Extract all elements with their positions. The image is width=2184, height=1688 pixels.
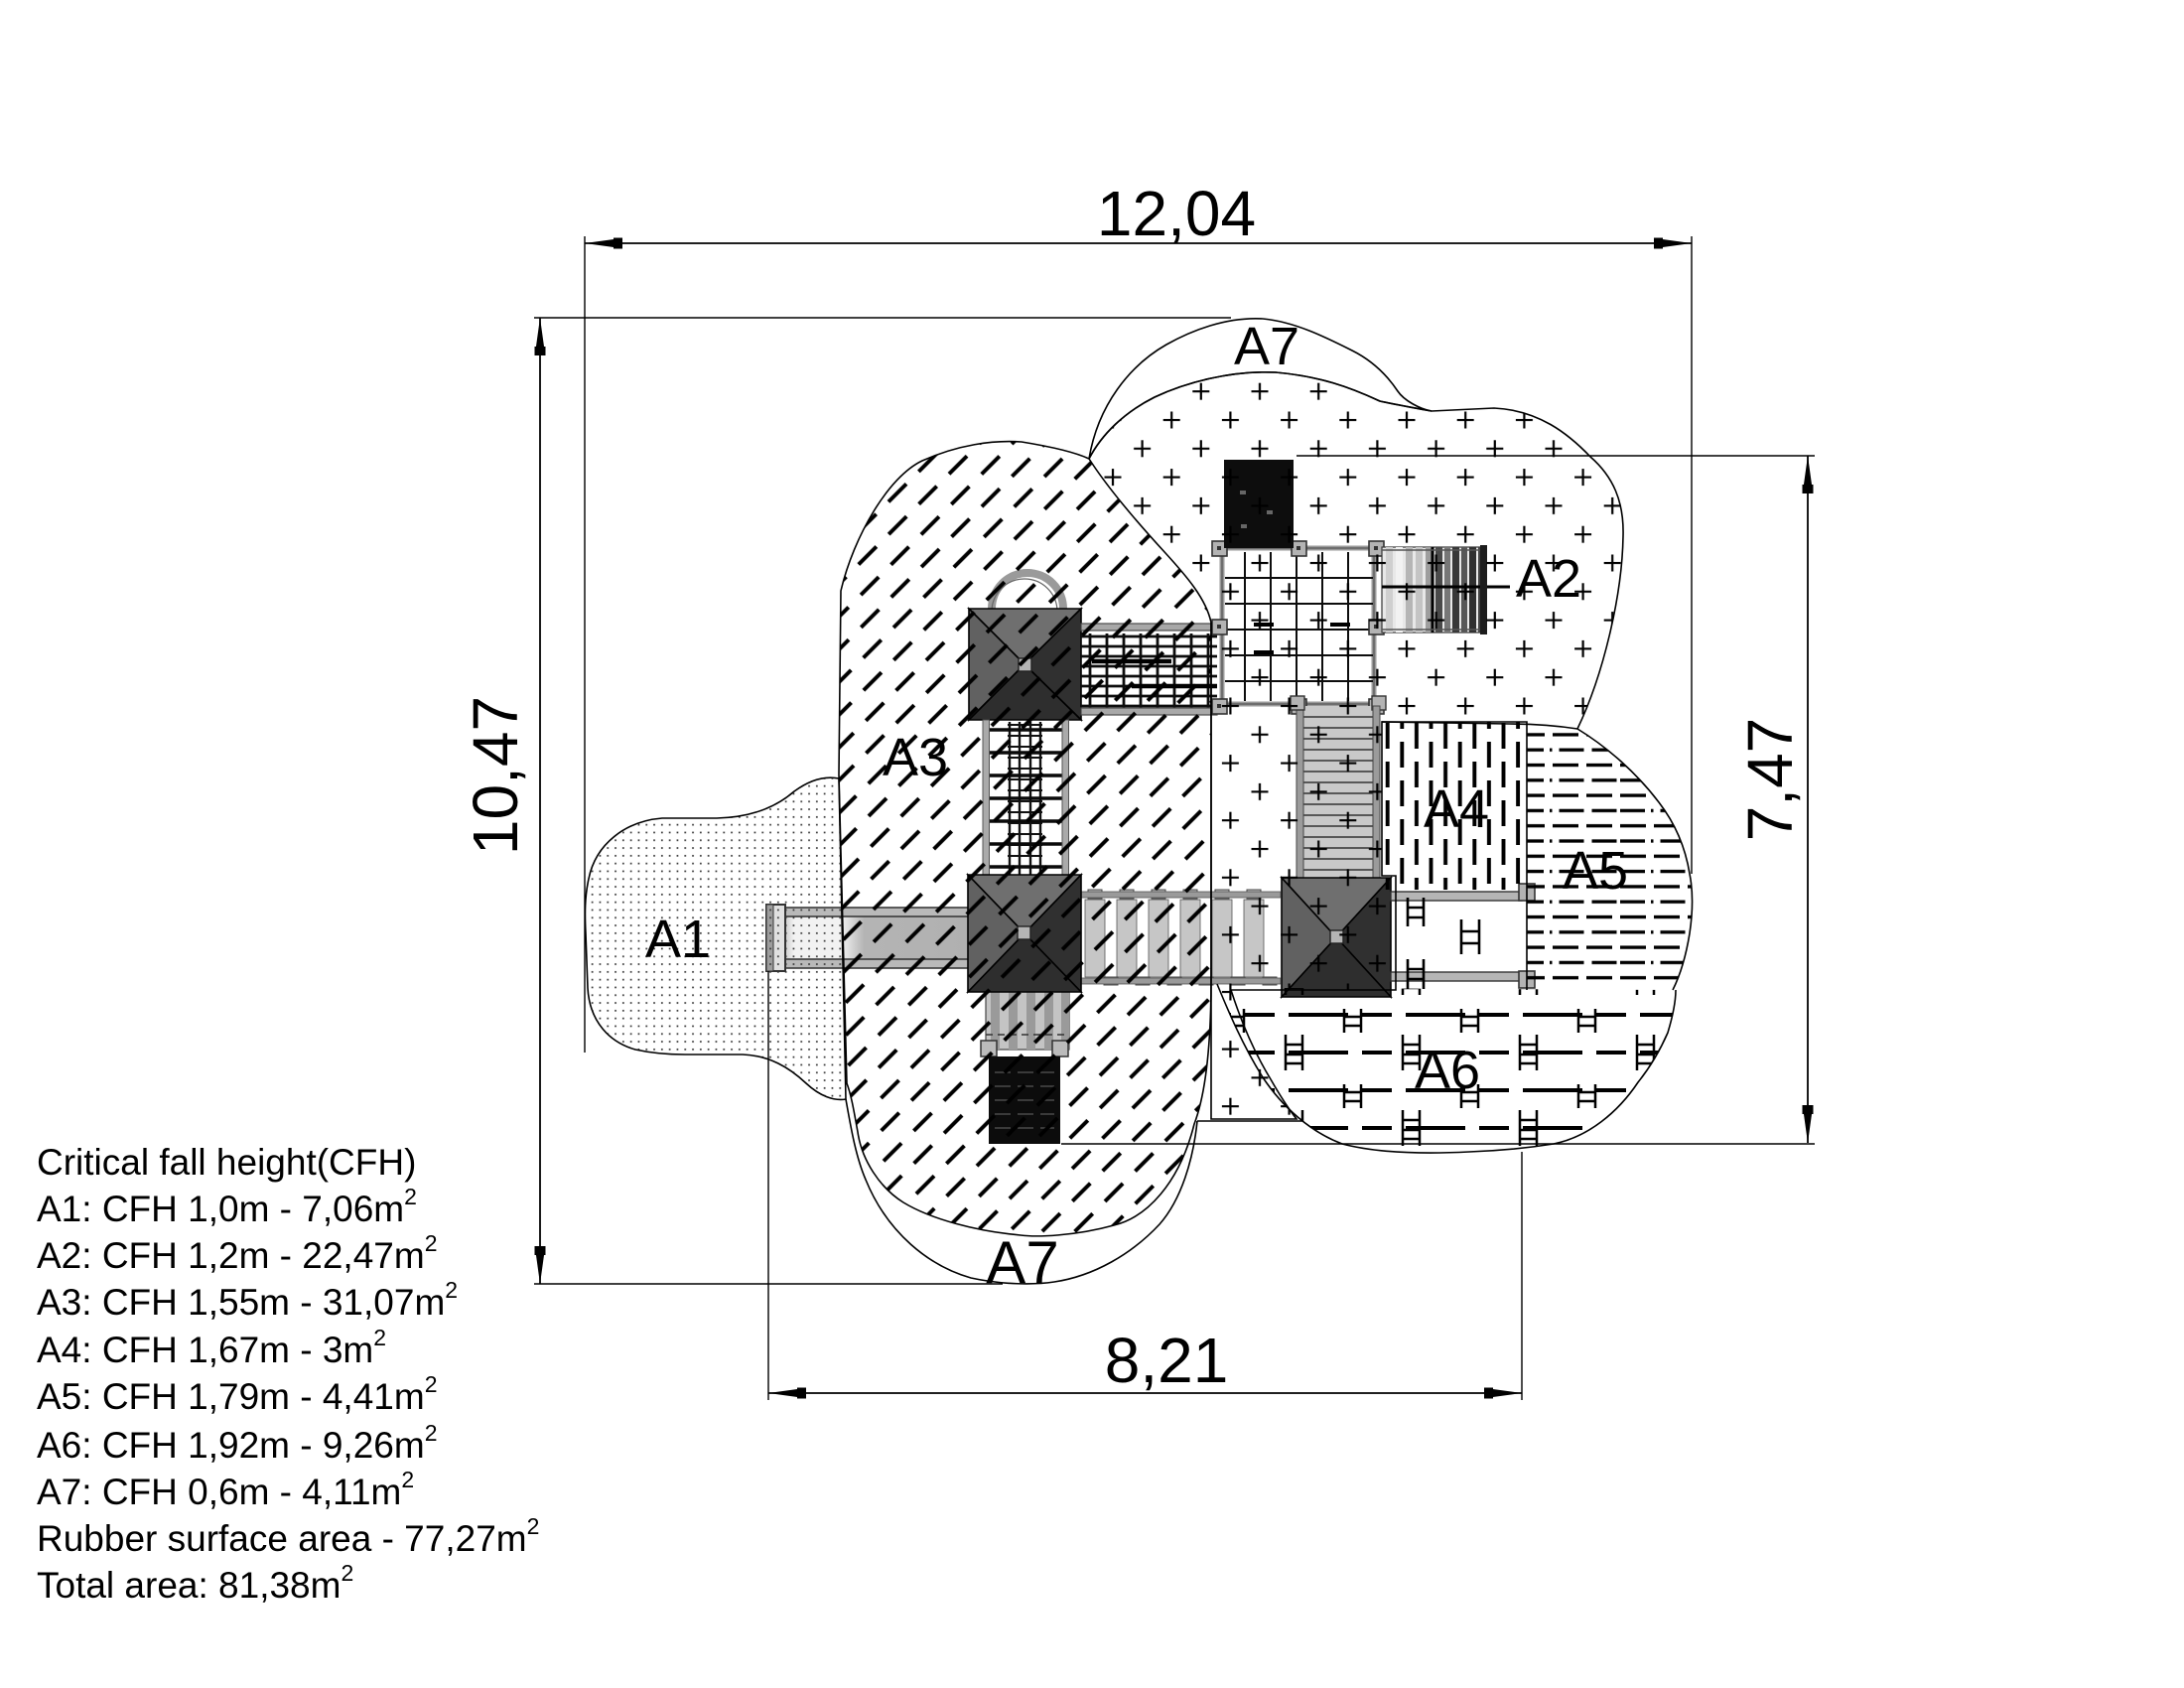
svg-text:A4: A4 bbox=[1424, 779, 1489, 839]
svg-text:A4: CFH 1,67m - 3m2: A4: CFH 1,67m - 3m2 bbox=[37, 1325, 386, 1370]
svg-text:A2: CFH 1,2m - 22,47m2: A2: CFH 1,2m - 22,47m2 bbox=[37, 1230, 437, 1276]
svg-text:A3: CFH 1,55m - 31,07m2: A3: CFH 1,55m - 31,07m2 bbox=[37, 1277, 458, 1323]
svg-text:Rubber surface area - 77,27m2: Rubber surface area - 77,27m2 bbox=[37, 1513, 539, 1559]
svg-text:A2: A2 bbox=[1516, 549, 1581, 609]
svg-text:A1: CFH 1,0m - 7,06m2: A1: CFH 1,0m - 7,06m2 bbox=[37, 1184, 417, 1229]
svg-text:A6: CFH 1,92m - 9,26m2: A6: CFH 1,92m - 9,26m2 bbox=[37, 1420, 437, 1466]
svg-text:A5: A5 bbox=[1563, 841, 1628, 901]
svg-text:12,04: 12,04 bbox=[1097, 178, 1256, 249]
svg-text:A7: A7 bbox=[986, 1229, 1058, 1296]
svg-text:10,47: 10,47 bbox=[460, 696, 531, 855]
svg-text:A1: A1 bbox=[645, 910, 711, 969]
svg-text:A3: A3 bbox=[883, 728, 948, 787]
svg-text:A5: CFH 1,79m - 4,41m2: A5: CFH 1,79m - 4,41m2 bbox=[37, 1371, 437, 1417]
svg-text:A7: CFH 0,6m - 4,11m2: A7: CFH 0,6m - 4,11m2 bbox=[37, 1467, 414, 1512]
svg-text:Total area: 81,38m2: Total area: 81,38m2 bbox=[37, 1560, 353, 1606]
svg-text:Critical fall height(CFH): Critical fall height(CFH) bbox=[37, 1142, 416, 1183]
svg-text:8,21: 8,21 bbox=[1105, 1325, 1229, 1396]
svg-text:7,47: 7,47 bbox=[1734, 718, 1806, 842]
svg-text:A7: A7 bbox=[1234, 317, 1299, 376]
svg-text:A6: A6 bbox=[1415, 1041, 1480, 1100]
